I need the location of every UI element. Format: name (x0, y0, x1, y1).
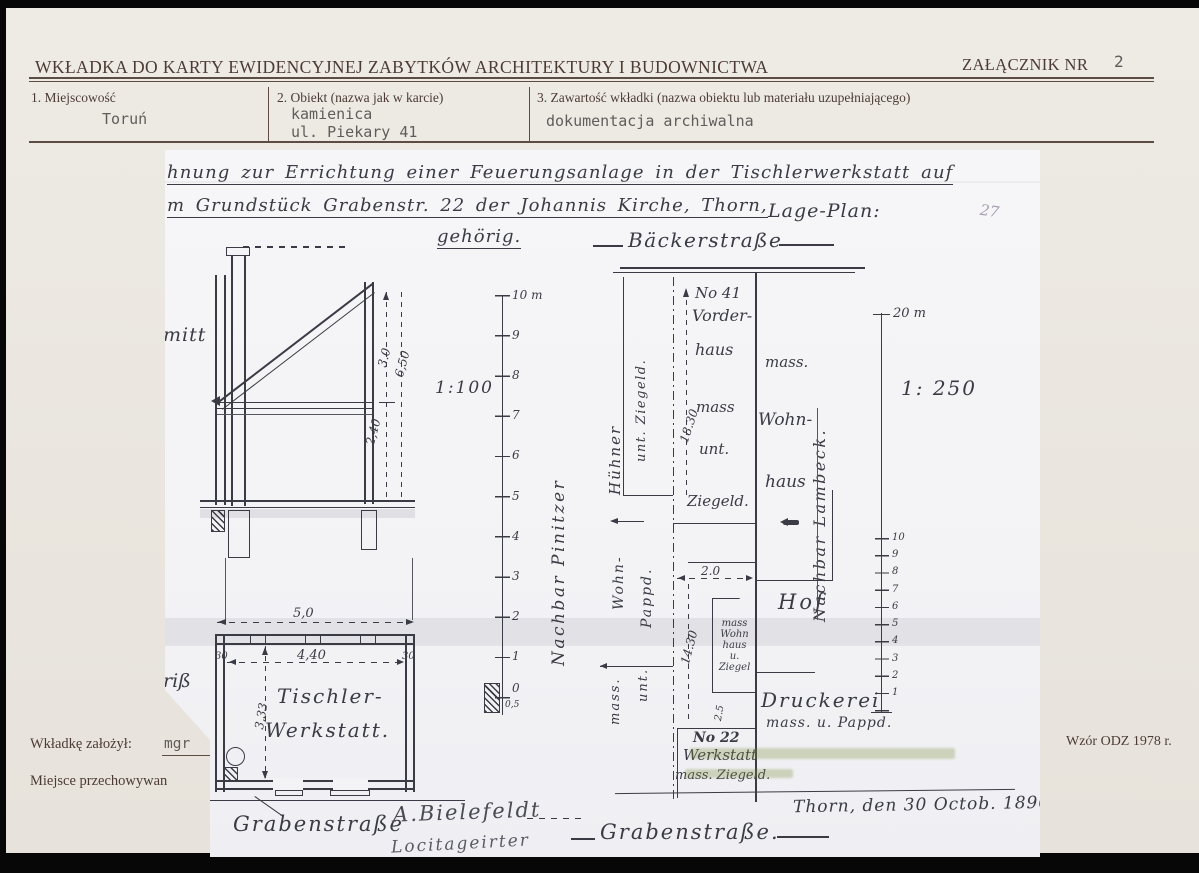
dim-roof-height: 3.0 (375, 347, 393, 369)
left-wing-label1: Hühner (606, 425, 624, 495)
dimension-line (686, 290, 687, 495)
street-bottom-left-label: Grabenstraße (233, 812, 404, 836)
plan-dim-inner: 4,40 (297, 648, 326, 663)
dash-line (571, 838, 595, 840)
dim-arrow-up (383, 288, 389, 300)
scale-tick-label: 9 (512, 328, 520, 342)
field3-label: 3. Zawartość wkładki (nazwa obiektu lub … (537, 90, 910, 106)
foundation-pier (361, 510, 377, 550)
field1-value: Toruń (102, 110, 147, 128)
field-separator-2 (529, 87, 530, 142)
section-partial-word: mitt (163, 324, 206, 346)
pencil-note: 27 (979, 201, 1000, 221)
scale-tick-label: 7 (512, 408, 520, 422)
octagon-label: Wohn (720, 629, 749, 640)
foundation-pier (211, 510, 225, 532)
mid-floor (217, 408, 372, 409)
druckerei-sublabel: mass. u. Pappd. (766, 715, 892, 731)
site-dim-width: 2.0 (701, 564, 720, 578)
house-number-41: No 41 (695, 284, 741, 302)
dimension-line (677, 578, 751, 579)
field2-label: 2. Obiekt (nazwa jak w karcie) (277, 90, 443, 106)
plan-dim-total: 5,0 (293, 606, 314, 621)
right-house-line1: mass. (765, 353, 808, 371)
scale-tick-label: 3 (512, 569, 520, 583)
octagon-label: Ziegel (719, 662, 751, 673)
dimension-line (217, 622, 411, 623)
scale-bottom-tick (871, 712, 892, 713)
foundation-pier (228, 510, 250, 558)
parcel-line (755, 272, 757, 802)
scale-top-label: 10 m (512, 288, 542, 302)
drawing-title-line1: hnung zur Errichtung einer Feuerungsanla… (167, 162, 953, 185)
wall-tick (250, 634, 251, 644)
archival-drawing-sheet: hnung zur Errichtung einer Feuerungsanla… (165, 150, 1040, 857)
wall-tick (375, 634, 376, 644)
dim-total-height: 6,50 (392, 349, 412, 378)
field-separator-1 (268, 87, 269, 142)
left-mid-label3: mass. (608, 677, 623, 725)
hof-boundary (832, 490, 833, 581)
division-line (688, 562, 755, 563)
field2-value-line1: kamienica (291, 105, 372, 123)
scale-tick-label: 4 (892, 635, 898, 646)
right-house-line3: haus (765, 472, 806, 492)
site-dim-small: 2.5 (713, 704, 727, 722)
neighbor-boundary (817, 408, 818, 620)
back-building-outline: mass Wohn haus u. Ziegel (712, 598, 757, 693)
dim-floor-height: 2,40 (363, 417, 383, 446)
right-wall (364, 282, 366, 504)
rear-wall (215, 788, 413, 790)
roof-peak (207, 396, 220, 406)
scale-top-tick (873, 314, 890, 315)
division-line (600, 666, 673, 667)
scale-hatch-block (484, 683, 500, 713)
dim-arrow-up (683, 284, 689, 297)
octagon-label: haus (723, 640, 747, 651)
footer-template-note: Wzór ODZ 1978 r. (1066, 734, 1172, 750)
chimney-cap (226, 247, 250, 256)
dash-line (243, 246, 348, 248)
form-title: WKŁADKA DO KARTY EWIDENCYJNEJ ZABYTKÓW A… (35, 57, 768, 78)
left-mid-label1: Wohn- (611, 555, 627, 610)
room-label-line2: Werkstatt. (265, 718, 390, 742)
attachment-number: 2 (1114, 52, 1124, 71)
vorderhaus-line1: Vorder- (692, 306, 752, 325)
header-rule-top (29, 77, 1154, 79)
neighbor-pinitzer-label: Nachbar Pinitzer (549, 479, 569, 666)
division-line (673, 523, 755, 524)
hof-boundary (755, 580, 833, 581)
left-mid-label4: unt. (636, 668, 651, 702)
scale-tick-label: 10 (892, 532, 905, 543)
druckerei-label: Druckerei (761, 688, 880, 712)
scale-tick-label: 3 (892, 653, 898, 664)
scale-tick-label: 8 (512, 368, 520, 382)
workshop-wall (677, 728, 678, 798)
chimney-wall (231, 256, 233, 506)
octagon-label: u. (730, 651, 740, 662)
vorderhaus-line3: mass (696, 398, 735, 416)
vorderhaus-line4: unt. (699, 440, 729, 458)
front-wall (215, 634, 413, 636)
scale-tick-label: 6 (512, 448, 520, 462)
scale-ticks (495, 295, 510, 699)
vorderhaus-line2: haus (695, 340, 733, 359)
scale-ticks (875, 538, 889, 712)
dim-arrow-left (674, 575, 685, 581)
street-bottom-right-label: Grabenstraße. (600, 820, 780, 844)
right-house-line2: Wohn- (758, 410, 812, 430)
right-wall (372, 282, 374, 504)
scale-tick-label: 5 (512, 489, 520, 503)
arrow-head-left (606, 518, 618, 524)
scale-half-label: 0,5 (505, 700, 519, 710)
dim-arrow-right (406, 619, 418, 625)
scale-tick-label: 1 (892, 687, 898, 698)
field2-value-line2: ul. Piekary 41 (291, 123, 417, 141)
rear-wall (215, 780, 413, 782)
footer-storage-label: Miejsce przechowywan (30, 773, 167, 790)
hof-boundary (755, 672, 815, 673)
scale-top-label: 20 m (893, 306, 926, 321)
division-line (623, 495, 673, 496)
drawing-title-lageplan: Lage-Plan: (768, 200, 881, 222)
dimension-line (386, 292, 387, 500)
scale-250-label: 1: 250 (901, 376, 977, 400)
wall-tick (320, 634, 321, 644)
footer-author-value: mgr (164, 736, 190, 752)
scale-tick-label: 2 (892, 670, 898, 681)
dash-line (779, 244, 834, 246)
dim-tick (379, 402, 395, 403)
roof-slope (217, 283, 373, 404)
field3-value: dokumentacja archiwalna (546, 112, 754, 130)
door-step (330, 790, 370, 796)
field1-label: 1. Miejscowość (31, 90, 116, 106)
scale-tick-label: 4 (512, 529, 520, 543)
dim-arrow-up (262, 643, 268, 655)
site-date: Thorn, den 30 Octob. 1896. (793, 793, 1057, 818)
left-wall (224, 275, 226, 505)
mid-floor (217, 414, 372, 415)
octagon-label: mass (722, 618, 748, 629)
drawing-title-line3: gehörig. (437, 226, 521, 249)
site-dim-yard: 14.30 (678, 629, 700, 666)
ground-floor (200, 500, 415, 502)
arrow-head-left (596, 663, 607, 669)
room-label-line1: Tischler- (277, 684, 384, 708)
parcel-boundary (673, 277, 674, 800)
scale-tick-label: 7 (892, 584, 898, 595)
header-rule-bottom (29, 81, 1154, 82)
street-line (620, 267, 865, 269)
scale-tick-label: 1 (512, 649, 520, 663)
stove-circle (226, 747, 245, 766)
footer-author-label: Wkładkę założył: (30, 736, 132, 753)
wall-tick (360, 634, 361, 644)
wall-tick (305, 634, 306, 644)
left-wall (215, 275, 217, 505)
hof-label: Hof (778, 590, 826, 614)
scale-tick-label: 6 (892, 601, 898, 612)
dim-arrow-right (397, 659, 408, 665)
drawing-title-line2: m Grundstück Grabenstr. 22 der Johannis … (167, 195, 768, 218)
scale-tick-label: 8 (892, 566, 898, 577)
front-wall (215, 643, 413, 645)
fields-bottom-rule (29, 141, 1154, 143)
dim-arrow-left (214, 619, 226, 625)
dim-arrow-left (225, 659, 236, 665)
plan-partial-word: riß (163, 670, 191, 692)
dash-line (777, 836, 829, 838)
guide-line (412, 558, 413, 620)
dash-line (593, 245, 623, 247)
dash-line (527, 818, 585, 819)
street-line (613, 272, 855, 273)
signature-name: A.Bielefeldt (393, 797, 542, 826)
left-mid-label2: Pappd. (639, 568, 655, 628)
arrow-head-left (776, 518, 788, 526)
street-top-label: Bäckerstraße (628, 228, 782, 252)
guide-line (225, 558, 226, 620)
house-number-22: No 22 (693, 730, 740, 746)
dimension-line (227, 662, 402, 663)
attachment-label: ZAŁĄCZNIK NR (962, 55, 1088, 75)
scale-tick-label: 5 (892, 618, 898, 629)
left-wing-label2: unt. Ziegeld. (634, 359, 649, 462)
mid-floor (217, 402, 372, 403)
faded-stamp-text (685, 769, 793, 778)
scale-tick-label: 9 (892, 549, 898, 560)
scale-tick-label: 2 (512, 609, 520, 623)
ziegeld-label: Ziegeld. (687, 492, 749, 510)
door-step (275, 790, 303, 796)
faded-stamp-text (690, 748, 955, 759)
dimension-line (401, 292, 402, 500)
section-scale-label: 1:100 (435, 378, 494, 398)
signature-title: Locitageirter (391, 830, 531, 857)
scale-tick-label: 0 (512, 681, 520, 695)
